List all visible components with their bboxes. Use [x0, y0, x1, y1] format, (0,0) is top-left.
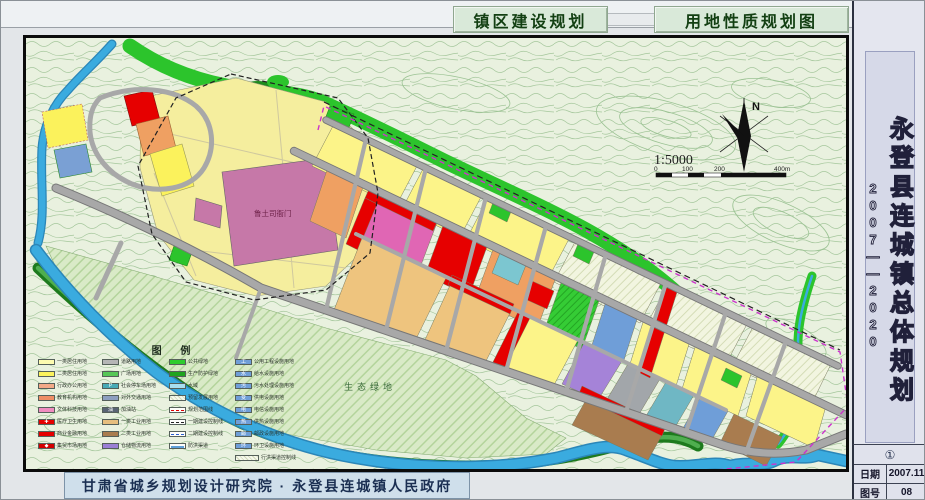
legend-item: 工公用工程设施用地 [235, 356, 312, 368]
legend-label: 集贸市场用地 [57, 444, 87, 449]
legend-swatch [38, 383, 55, 389]
legend-label: 一类工业用地 [121, 420, 151, 425]
svg-text:100: 100 [682, 166, 693, 173]
legend-swatch [102, 431, 119, 437]
legend-swatch [169, 395, 186, 401]
svg-text:400m: 400m [774, 166, 790, 173]
legend-label: 一类居住用地 [57, 360, 87, 365]
svg-text:200: 200 [714, 166, 725, 173]
legend-label: 行洪渠道控制线 [261, 456, 296, 461]
legend-label: 供电设施用地 [254, 396, 284, 401]
map-panel: 生态绿地 [23, 35, 849, 472]
legend-label: 规划范围线 [188, 408, 213, 413]
planning-drawing-sheet: 镇区建设规划 用地性质规划图 [0, 0, 925, 500]
legend-swatch [169, 431, 186, 437]
legend-item: P社会停车场用地 [102, 380, 169, 392]
legend-title: 图 例 [38, 342, 312, 356]
legend-item: 水域 [169, 380, 235, 392]
legend-label: 文体科技用地 [57, 408, 87, 413]
legend-item: 电电信设施用地 [235, 404, 312, 416]
legend-item: 仓储物流用地 [102, 440, 169, 452]
historic-site-label: 鲁土司衙门 [254, 208, 292, 218]
legend-item: 行洪渠道控制线 [235, 452, 312, 464]
legend-item: 行政办公用地 [38, 380, 102, 392]
legend-item: 热供热设施用地 [235, 416, 312, 428]
legend-item: 广场用地 [102, 368, 169, 380]
legend-label: 邮政设施用地 [254, 432, 284, 437]
sheet-number-label: 图号 [854, 484, 887, 500]
legend-item: 公共绿地 [169, 356, 235, 368]
institution-bar: 甘肃省城乡规划设计研究院 · 永登县连城镇人民政府 [64, 472, 470, 499]
legend-label: 二类工业用地 [121, 432, 151, 437]
legend-label: 道路用地 [121, 360, 141, 365]
legend-label: 仓储物流用地 [121, 444, 151, 449]
legend-swatch [169, 383, 186, 389]
legend-item: 生产防护绿地 [169, 368, 235, 380]
legend-label: 行政办公用地 [57, 384, 87, 389]
legend-label: 预留发展用地 [188, 396, 218, 401]
legend-item: 防洪渠道 [169, 440, 235, 452]
legend-swatch [169, 443, 186, 449]
legend-item: 道路用地 [102, 356, 169, 368]
legend-item: 预留发展用地 [169, 392, 235, 404]
sidebar-title-panel: 永登县连城镇总体规划 2007——2020 [865, 51, 915, 443]
legend-item: 二期建设控制线 [169, 428, 235, 440]
drawing-info-table: ① 日期 2007.11 图号 08 [852, 444, 925, 500]
subtitle-left-text: 镇区建设规划 [473, 8, 587, 32]
legend-label: 供热设施用地 [254, 420, 284, 425]
legend-swatch [102, 359, 119, 365]
legend-swatch [38, 407, 55, 413]
legend-swatch [169, 359, 186, 365]
legend-item: 环环卫设施用地 [235, 440, 312, 452]
legend-label: 商业金融用地 [57, 432, 87, 437]
north-label: N [752, 101, 760, 113]
legend-label: 广场用地 [121, 372, 141, 377]
legend-swatch: P [102, 383, 119, 389]
legend-item: 油加油站 [102, 404, 169, 416]
legend-item: 变供电设施用地 [235, 392, 312, 404]
legend-item: 二类工业用地 [102, 428, 169, 440]
subtitle-box-landuse-plan: 用地性质规划图 [654, 6, 849, 33]
legend-swatch: 污 [235, 383, 252, 389]
legend-swatch [235, 455, 259, 461]
subtitle-box-construction-plan: 镇区建设规划 [453, 6, 608, 33]
legend-item: 规划范围线 [169, 404, 235, 416]
legend-swatch: ◆ [38, 443, 55, 449]
date-value: 2007.11 [887, 465, 925, 483]
legend-label: 生产防护绿地 [188, 372, 218, 377]
legend-label: 社会停车场用地 [121, 384, 156, 389]
eco-green-label: 生态绿地 [344, 381, 396, 392]
legend-swatch: 变 [235, 395, 252, 401]
plan-title-vertical: 永登县连城镇总体规划 [886, 116, 913, 406]
legend: 图 例 一类居住用地二类居住用地行政办公用地教育机构用地文体科技用地✚医疗卫生用… [38, 342, 312, 468]
subtitle-right-text: 用地性质规划图 [685, 8, 818, 32]
legend-swatch: 邮 [235, 431, 252, 437]
legend-label: 医疗卫生用地 [57, 420, 87, 425]
legend-swatch: 电 [235, 407, 252, 413]
legend-label: 公共绿地 [188, 360, 208, 365]
legend-label: 环卫设施用地 [254, 444, 284, 449]
date-row: 日期 2007.11 [854, 464, 925, 483]
title-connector [605, 13, 657, 26]
legend-swatch [38, 395, 55, 401]
legend-swatch [38, 431, 55, 437]
legend-swatch: 水 [235, 371, 252, 377]
legend-item: 文体科技用地 [38, 404, 102, 416]
legend-swatch: 环 [235, 443, 252, 449]
legend-item: 二类居住用地 [38, 368, 102, 380]
legend-swatch [102, 443, 119, 449]
legend-label: 加油站 [121, 408, 136, 413]
legend-item: 商业金融用地 [38, 428, 102, 440]
legend-swatch: 热 [235, 419, 252, 425]
legend-item: 对外交通用地 [102, 392, 169, 404]
sheet-number-row: 图号 08 [854, 483, 925, 500]
legend-label: 给水设施用地 [254, 372, 284, 377]
legend-swatch [102, 371, 119, 377]
legend-swatch [169, 371, 186, 377]
legend-columns: 一类居住用地二类居住用地行政办公用地教育机构用地文体科技用地✚医疗卫生用地商业金… [38, 356, 312, 464]
legend-swatch [102, 395, 119, 401]
legend-swatch [38, 371, 55, 377]
legend-label: 一期建设控制线 [188, 420, 223, 425]
legend-label: 水域 [188, 384, 198, 389]
stamp-mark: ① [854, 445, 925, 464]
legend-swatch [169, 407, 186, 413]
legend-label: 对外交通用地 [121, 396, 151, 401]
institution-text: 甘肃省城乡规划设计研究院 · 永登县连城镇人民政府 [82, 476, 452, 496]
legend-label: 防洪渠道 [188, 444, 208, 449]
legend-item: 教育机构用地 [38, 392, 102, 404]
legend-label: 公用工程设施用地 [254, 360, 294, 365]
legend-item: 一类居住用地 [38, 356, 102, 368]
legend-item: ◆集贸市场用地 [38, 440, 102, 452]
legend-item: 污污水处理设施用地 [235, 380, 312, 392]
title-block-sidebar: 永登县连城镇总体规划 2007——2020 [852, 1, 925, 500]
legend-label: 二类居住用地 [57, 372, 87, 377]
legend-item: 邮邮政设施用地 [235, 428, 312, 440]
legend-swatch [38, 359, 55, 365]
legend-swatch: 工 [235, 359, 252, 365]
legend-label: 电信设施用地 [254, 408, 284, 413]
legend-swatch [102, 419, 119, 425]
svg-text:0: 0 [654, 166, 658, 173]
plan-years-vertical: 2007——2020 [866, 181, 881, 351]
legend-item: 水给水设施用地 [235, 368, 312, 380]
legend-swatch [169, 419, 186, 425]
date-label: 日期 [854, 465, 887, 483]
sheet-number-value: 08 [887, 484, 925, 500]
legend-swatch: ✚ [38, 419, 55, 425]
legend-item: ✚医疗卫生用地 [38, 416, 102, 428]
legend-item: 一期建设控制线 [169, 416, 235, 428]
legend-label: 教育机构用地 [57, 396, 87, 401]
legend-item: 一类工业用地 [102, 416, 169, 428]
legend-swatch: 油 [102, 407, 119, 413]
legend-label: 二期建设控制线 [188, 432, 223, 437]
legend-label: 污水处理设施用地 [254, 384, 294, 389]
